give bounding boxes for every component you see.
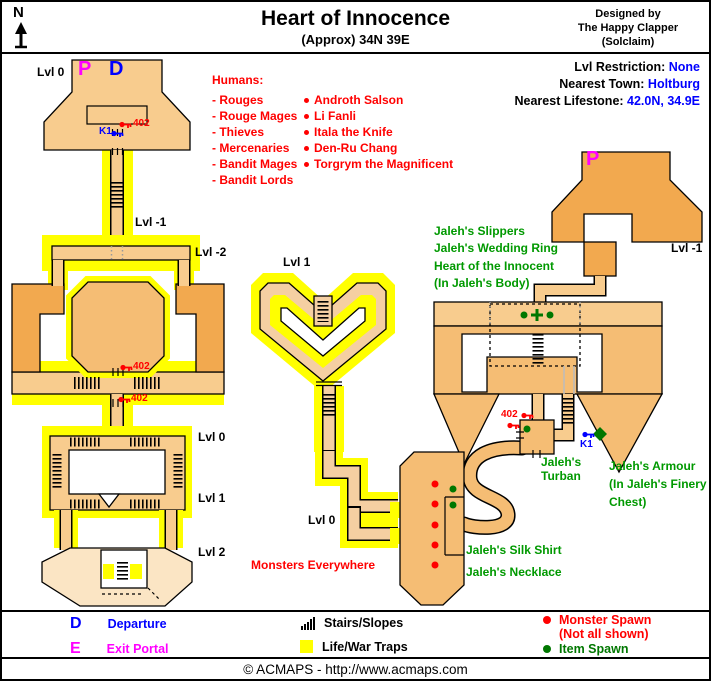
human-type: - Thieves [212, 124, 304, 140]
designer-line: Designed by [553, 7, 703, 21]
bullet-icon [304, 130, 309, 135]
nearest-lifestone-row: Nearest Lifestone: 42.0N, 34.9E [515, 93, 701, 110]
human-type: - Bandit Lords [212, 172, 304, 188]
named-human: Den-Ru Chang [304, 140, 453, 156]
bullet-icon [304, 162, 309, 167]
designer-line: The Happy Clapper [553, 21, 703, 35]
turban-label: Jaleh's Turban [541, 455, 581, 483]
portal-marker-entrance: P [78, 58, 91, 81]
silk-shirt-label: Jaleh's Silk Shirt [466, 543, 562, 557]
stem-and-zigzag-lvl0 [314, 382, 398, 534]
bullet-icon [304, 98, 309, 103]
designer-line: (Solclaim) [553, 35, 703, 49]
trap-square-icon [300, 640, 313, 653]
entrance-hall-lvl0 [44, 60, 190, 248]
legend-departure: D Departure [70, 615, 167, 633]
portal-marker-exit: P [586, 148, 599, 171]
monsters-note: Monsters Everywhere [251, 558, 375, 572]
level-label-center: Lvl 0 [308, 513, 335, 527]
legend-divider [2, 610, 709, 612]
loot-line: (In Jaleh's Body) [434, 275, 558, 292]
exit-portal-room [540, 152, 702, 304]
stairs-icon [300, 616, 318, 631]
human-type: - Bandit Mages [212, 156, 304, 172]
named-human: Torgrym the Magnificent [304, 156, 453, 172]
key-label-k1-left: K1 [99, 126, 112, 137]
legend-traps: Life/War Traps [300, 640, 408, 654]
level-label-ring-bottom: Lvl 1 [198, 491, 225, 505]
designer-credit: Designed by The Happy Clapper (Solclaim) [553, 7, 703, 49]
legend-stairs: Stairs/Slopes [300, 616, 403, 631]
bullet-icon [304, 114, 309, 119]
human-type: - Mercenaries [212, 140, 304, 156]
acmaps-map-page: N Heart of Innocence (Approx) 34N 39E De… [0, 0, 711, 681]
lvl-minus1-minus2-complex [12, 235, 224, 440]
level-label-left-m2: Lvl -2 [195, 245, 226, 259]
lvl-restriction-row: Lvl Restriction: None [515, 59, 701, 76]
nearest-lifestone-value: 42.0N, 34.9E [627, 94, 700, 108]
named-human: Itala the Knife [304, 124, 453, 140]
exit-portal-key-icon: E [70, 640, 81, 658]
monster-dot-icon [543, 616, 551, 624]
armour-label: Jaleh's Armour (In Jaleh's Finery Chest) [609, 457, 707, 511]
key-label-k1-right: K1 [580, 439, 593, 450]
door-label-402-b: 402 [133, 361, 150, 372]
nearest-town-label: Nearest Town: [559, 77, 648, 91]
level-label-heart: Lvl 1 [283, 255, 310, 269]
departure-marker: D [109, 58, 123, 81]
lvl-restriction-label: Lvl Restriction: [574, 60, 668, 74]
named-humans-column: Androth Salson Li Fanli Itala the Knife … [304, 92, 453, 188]
legend-item-spawn: Item Spawn [543, 642, 628, 656]
necklace-label: Jaleh's Necklace [466, 565, 562, 579]
level-label-ring-top: Lvl 0 [198, 430, 225, 444]
tall-spawn-room [390, 452, 464, 605]
lvl-restriction-value: None [669, 60, 700, 74]
item-dot-icon [543, 645, 551, 653]
human-types-column: - Rouges - Rouge Mages - Thieves - Merce… [212, 92, 304, 188]
key-icon-402-d1 [521, 413, 533, 419]
header-divider [2, 52, 709, 54]
humans-list: Humans: - Rouges - Rouge Mages - Thieves… [212, 73, 453, 188]
dungeon-info-block: Lvl Restriction: None Nearest Town: Holt… [515, 59, 701, 110]
humans-heading: Humans: [212, 73, 453, 87]
footer-copyright: © ACMAPS - http://www.acmaps.com [2, 657, 709, 679]
door-label-402-d: 402 [501, 409, 518, 420]
nearest-lifestone-label: Nearest Lifestone: [515, 94, 628, 108]
jaleh-body-loot-list: Jaleh's Slippers Jaleh's Wedding Ring He… [434, 223, 558, 292]
loot-line: Jaleh's Wedding Ring [434, 240, 558, 257]
level-label-lower: Lvl 2 [198, 545, 225, 559]
key-icon-k1-right [582, 432, 594, 438]
level-label-entrance: Lvl 0 [37, 65, 64, 79]
named-human: Androth Salson [304, 92, 453, 108]
door-label-402-c: 402 [131, 393, 148, 404]
named-human: Li Fanli [304, 108, 453, 124]
legend-monster-spawn: Monster Spawn(Not all shown) [543, 613, 651, 641]
nearest-town-row: Nearest Town: Holtburg [515, 76, 701, 93]
departure-key-icon: D [70, 615, 82, 633]
lvl2-lower-hall [42, 548, 192, 606]
door-label-402-a: 402 [133, 118, 150, 129]
human-type: - Rouges [212, 92, 304, 108]
human-type: - Rouge Mages [212, 108, 304, 124]
loot-line: Jaleh's Slippers [434, 223, 558, 240]
heart-corridor-lvl1 [251, 273, 395, 393]
level-label-right-m1: Lvl -1 [671, 241, 702, 255]
key-icon-402-d2 [507, 423, 519, 429]
ring-room-lvl0-lvl1 [42, 426, 192, 550]
loot-line: Heart of the Innocent [434, 258, 558, 275]
level-label-left-m1: Lvl -1 [135, 215, 166, 229]
nearest-town-value: Holtburg [648, 77, 700, 91]
legend-exit-portal: E Exit Portal [70, 640, 169, 658]
bullet-icon [304, 146, 309, 151]
